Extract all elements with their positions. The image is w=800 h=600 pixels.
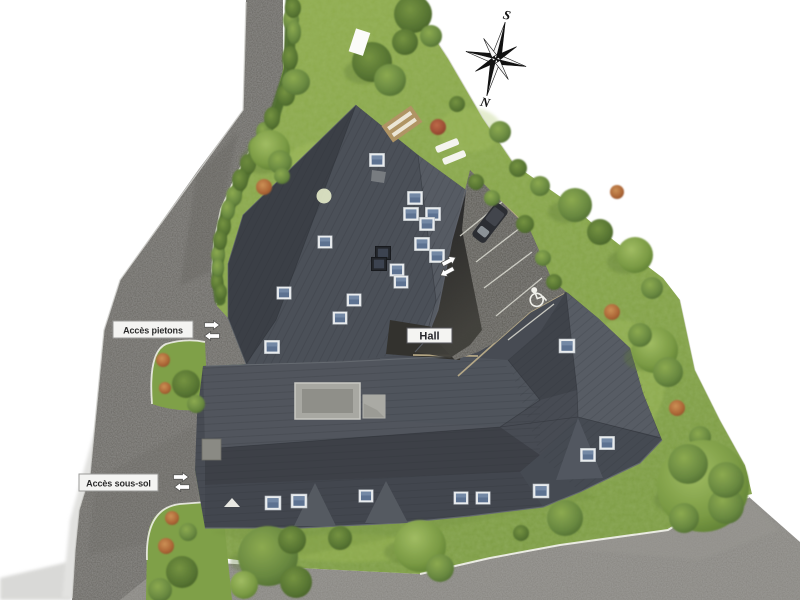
- svg-text:Accès pietons: Accès pietons: [123, 326, 183, 336]
- svg-text:Hall: Hall: [419, 331, 439, 343]
- svg-text:Accès sous-sol: Accès sous-sol: [86, 479, 151, 489]
